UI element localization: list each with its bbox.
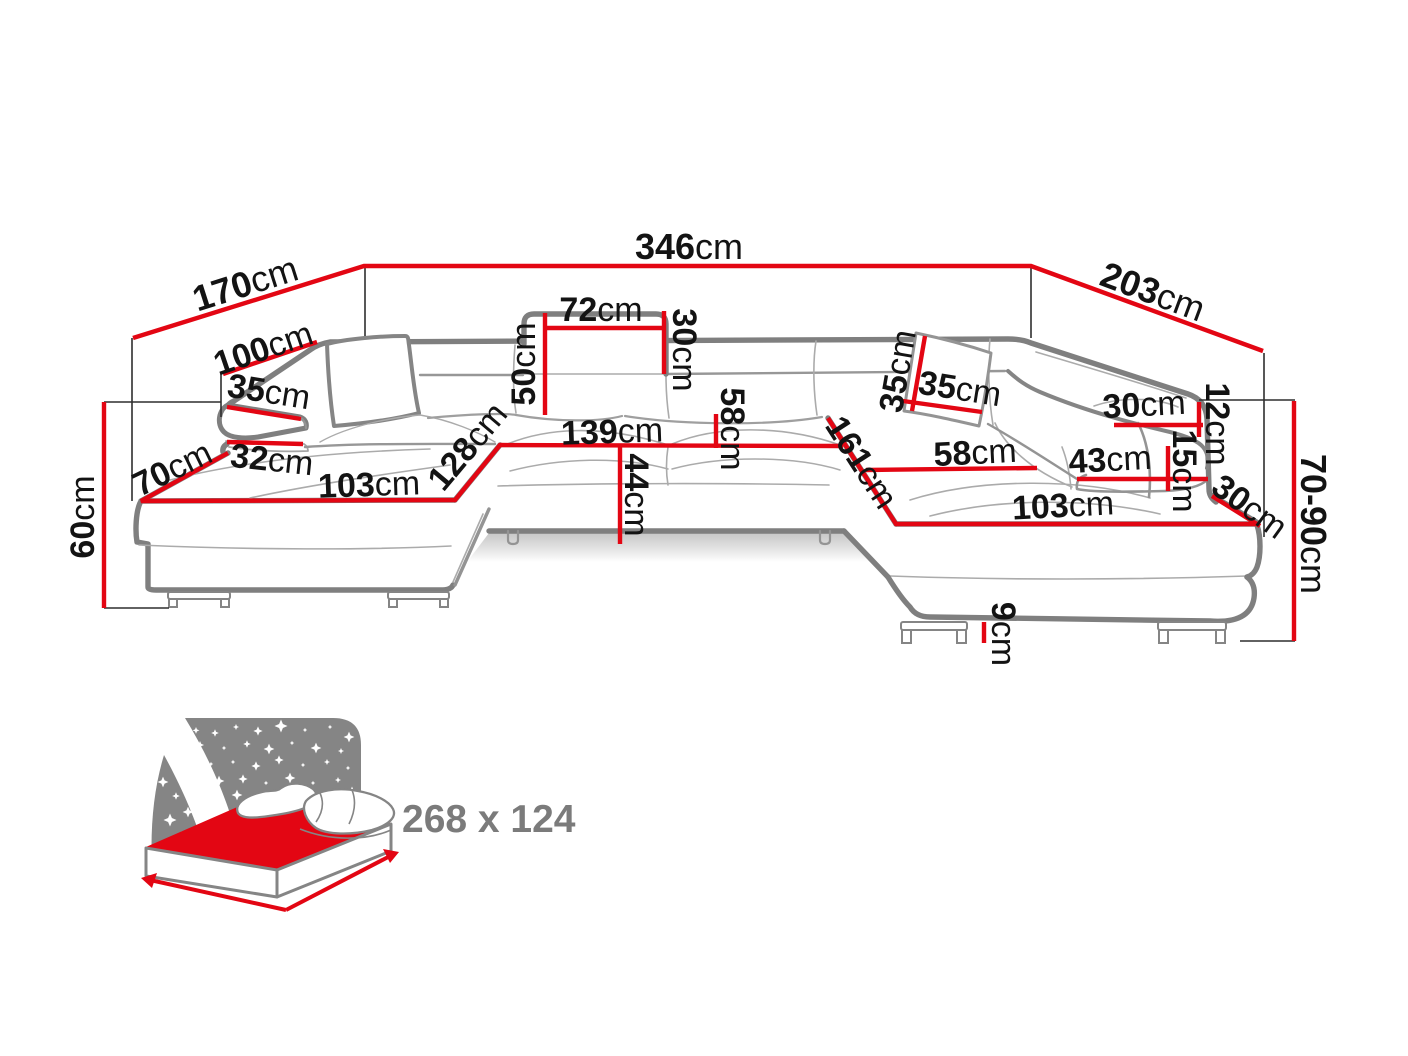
svg-text:30cm: 30cm xyxy=(1205,467,1295,547)
svg-text:139cm: 139cm xyxy=(560,411,663,453)
svg-text:70cm: 70cm xyxy=(127,434,218,505)
svg-text:30cm: 30cm xyxy=(1102,384,1187,426)
svg-text:50cm: 50cm xyxy=(505,322,543,405)
svg-text:58cm: 58cm xyxy=(713,387,751,470)
svg-text:268 x 124: 268 x 124 xyxy=(402,798,576,841)
svg-text:43cm: 43cm xyxy=(1068,439,1153,481)
svg-text:15cm: 15cm xyxy=(1165,429,1203,512)
svg-text:72cm: 72cm xyxy=(559,291,642,329)
svg-text:44cm: 44cm xyxy=(617,453,655,536)
svg-text:32cm: 32cm xyxy=(229,437,316,483)
svg-text:30cm: 30cm xyxy=(665,308,703,391)
svg-text:60cm: 60cm xyxy=(64,475,102,558)
svg-text:161cm: 161cm xyxy=(817,409,904,515)
svg-text:203cm: 203cm xyxy=(1095,253,1211,329)
svg-text:103cm: 103cm xyxy=(317,464,420,506)
svg-text:103cm: 103cm xyxy=(1011,484,1115,527)
svg-text:9cm: 9cm xyxy=(984,602,1022,666)
svg-text:346cm: 346cm xyxy=(635,226,743,267)
svg-text:170cm: 170cm xyxy=(187,248,302,320)
svg-text:58cm: 58cm xyxy=(933,432,1018,474)
svg-text:70-90cm: 70-90cm xyxy=(1293,454,1334,594)
